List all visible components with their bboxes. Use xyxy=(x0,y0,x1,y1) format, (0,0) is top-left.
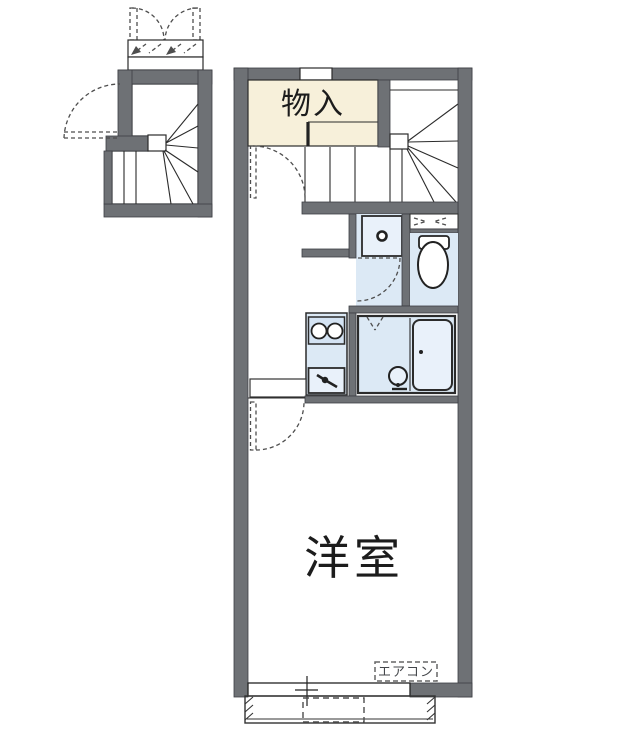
washroom xyxy=(356,214,402,306)
balcony-dashed-area xyxy=(303,698,364,722)
bathtub xyxy=(413,320,452,390)
corridor-stub-wall xyxy=(302,249,349,257)
washbasin-drain-icon xyxy=(378,232,387,241)
balcony-hatch-left xyxy=(245,697,253,720)
burner-icon xyxy=(328,324,343,339)
washroom-toilet-wall xyxy=(402,214,410,306)
western-room: 洋室 エアコン xyxy=(304,532,437,681)
bath-left-wall xyxy=(349,313,356,396)
hall-door-swing xyxy=(251,146,306,198)
balcony xyxy=(245,696,435,723)
bathtub-drain-icon xyxy=(419,350,423,354)
bath-stool-icon xyxy=(389,367,407,385)
entrance-structure xyxy=(64,8,212,217)
main-unit: 物入 xyxy=(234,68,472,723)
top-window xyxy=(300,68,332,80)
floorplan-page: 物入 xyxy=(0,0,640,734)
entrance-double-door xyxy=(130,8,200,40)
storage-right-wall xyxy=(378,80,390,147)
aircon-label: エアコン xyxy=(378,664,434,679)
kitchen-side-counter xyxy=(250,379,306,397)
stairs-bottom-wall xyxy=(302,202,458,214)
burner-icon xyxy=(312,324,327,339)
room-top-wall xyxy=(305,396,458,403)
toilet-top-wall xyxy=(410,229,458,233)
western-room-label: 洋室 xyxy=(304,532,404,584)
toilet-bowl xyxy=(418,242,448,288)
aircon-box: エアコン xyxy=(375,662,437,681)
bathroom xyxy=(358,316,455,393)
toilet-vent-cell xyxy=(410,214,458,229)
storage-room: 物入 xyxy=(248,80,378,146)
bath-faucet-knob-icon xyxy=(396,383,400,387)
kitchen xyxy=(250,313,347,397)
balcony-hatch-right xyxy=(427,697,435,720)
mid-horizontal-wall xyxy=(349,306,458,313)
washroom-left-wall xyxy=(349,214,356,258)
toilet-room xyxy=(410,233,458,306)
storage-label: 物入 xyxy=(281,88,345,121)
room-door-swing xyxy=(251,402,305,450)
floorplan-drawing: 物入 xyxy=(0,0,640,734)
porch-steps xyxy=(128,40,203,70)
entrance-door-swing xyxy=(64,84,120,138)
